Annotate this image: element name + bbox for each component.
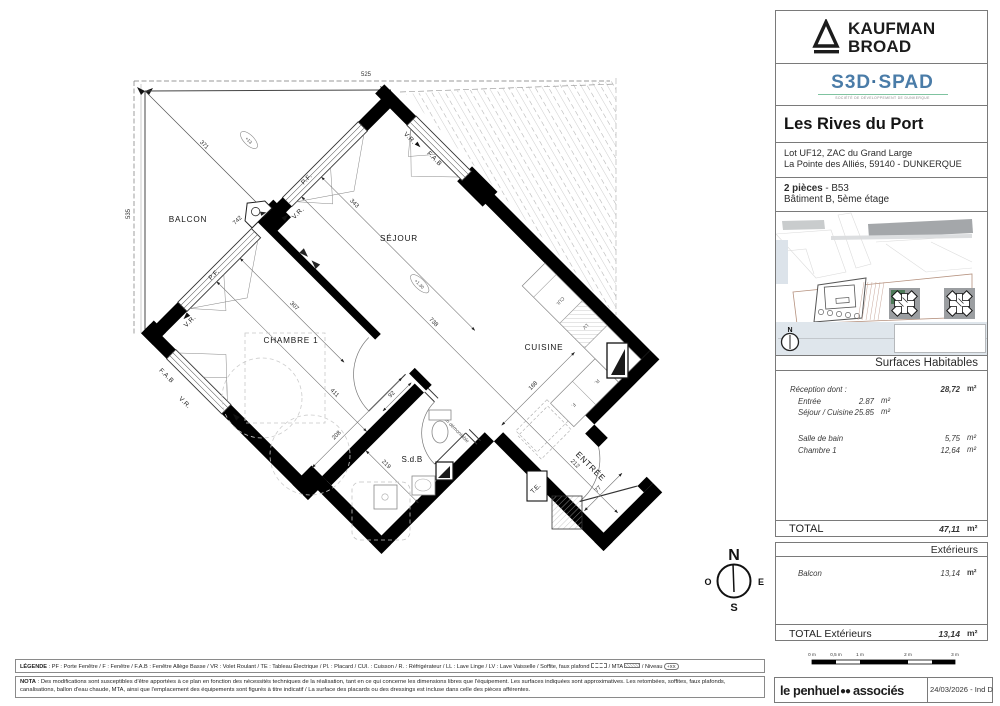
svg-text:742: 742	[232, 215, 244, 227]
svg-text:E: E	[758, 577, 764, 587]
svg-text:738: 738	[427, 317, 439, 329]
svg-text:219: 219	[380, 459, 392, 471]
svg-text:BALCON: BALCON	[169, 215, 207, 224]
svg-text:1 m: 1 m	[856, 652, 864, 657]
svg-text:O: O	[704, 577, 711, 587]
svg-text:3 m: 3 m	[951, 652, 959, 657]
svg-text:411: 411	[329, 388, 340, 399]
svg-text:S: S	[730, 602, 737, 614]
svg-text:CHAMBRE 1: CHAMBRE 1	[264, 336, 319, 345]
svg-text:525: 525	[361, 72, 372, 78]
svg-text:307: 307	[288, 301, 300, 313]
svg-text:168: 168	[528, 380, 540, 392]
svg-text:V.R.: V.R.	[177, 395, 192, 410]
svg-text:S.d.B: S.d.B	[401, 455, 422, 464]
svg-text:343: 343	[348, 198, 360, 210]
svg-text:77: 77	[594, 485, 603, 494]
svg-text:+1.30: +1.30	[414, 278, 426, 290]
svg-text:2 m: 2 m	[904, 652, 912, 657]
svg-text:F.A.B: F.A.B	[157, 367, 175, 385]
svg-text:SÉJOUR: SÉJOUR	[380, 233, 418, 243]
svg-text:0 m: 0 m	[808, 652, 816, 657]
svg-text:371: 371	[198, 140, 210, 152]
svg-text:V.R.: V.R.	[291, 206, 306, 221]
svg-text:N: N	[728, 547, 740, 564]
svg-text:208: 208	[331, 430, 343, 442]
svg-text:CUISINE: CUISINE	[525, 343, 564, 352]
svg-text:0,5 m: 0,5 m	[830, 652, 842, 657]
svg-text:N: N	[787, 327, 792, 334]
svg-text:535: 535	[126, 208, 132, 219]
